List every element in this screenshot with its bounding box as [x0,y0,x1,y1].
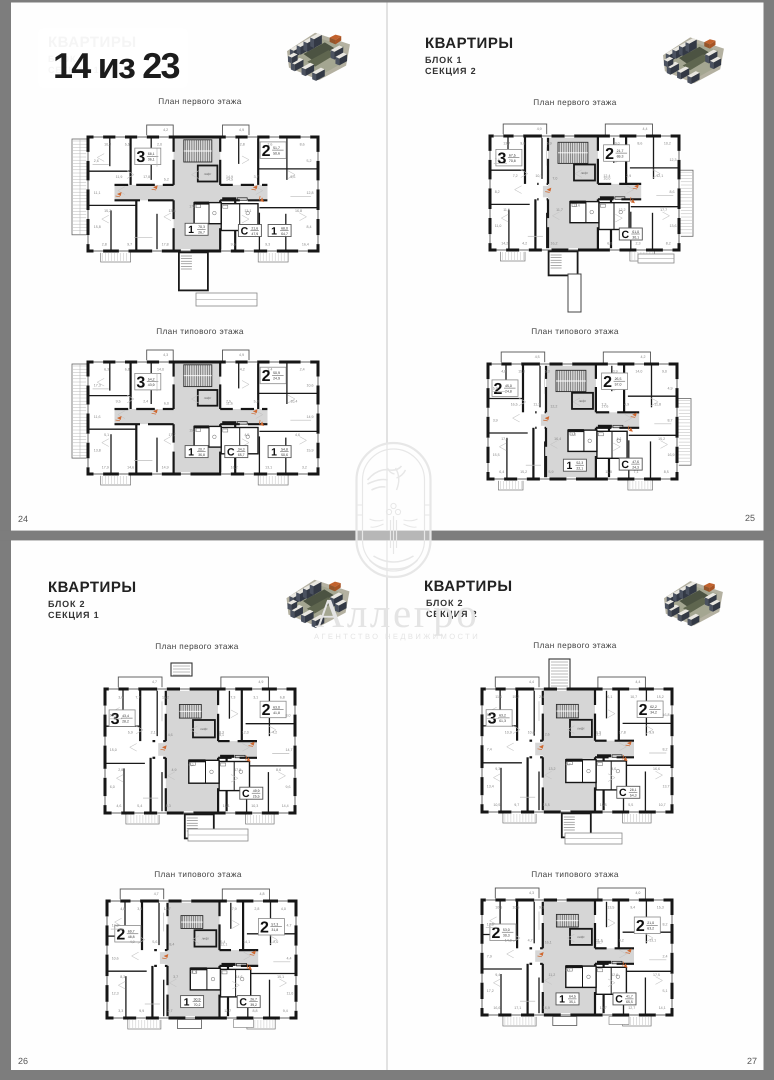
svg-text:План типового этажа: План типового этажа [156,327,244,336]
svg-text:С: С [615,994,623,1006]
svg-text:5,1: 5,1 [104,433,109,437]
svg-text:3,6: 3,6 [118,695,123,699]
svg-text:12,0: 12,0 [110,713,117,717]
svg-text:15,0: 15,0 [110,748,117,752]
svg-text:2: 2 [636,918,645,935]
svg-text:11,6: 11,6 [226,402,233,406]
svg-text:12,7: 12,7 [224,1009,231,1013]
svg-text:16,1: 16,1 [545,941,552,945]
svg-text:17,7: 17,7 [660,208,667,212]
svg-text:5,9: 5,9 [547,142,552,146]
svg-text:4,0: 4,0 [635,891,640,895]
svg-text:10,5: 10,5 [512,906,519,910]
svg-text:5,4: 5,4 [137,804,142,808]
svg-text:7,3: 7,3 [230,695,235,699]
svg-text:10,3: 10,3 [251,804,258,808]
svg-text:16,9: 16,9 [543,1006,550,1010]
svg-text:12,2: 12,2 [619,208,626,212]
svg-text:14,0: 14,0 [157,367,164,371]
svg-text:4,4: 4,4 [635,680,640,684]
svg-text:26,5: 26,5 [615,377,622,381]
svg-text:16,9: 16,9 [668,453,675,457]
svg-text:70,8: 70,8 [509,159,516,163]
svg-text:63,2: 63,2 [647,927,654,931]
svg-text:27: 27 [747,1056,757,1066]
svg-text:лифт: лифт [581,171,589,175]
svg-text:64,5: 64,5 [569,995,576,999]
svg-text:9,5: 9,5 [116,399,121,403]
svg-text:6,3: 6,3 [104,367,109,371]
svg-text:21,0: 21,0 [647,921,654,925]
svg-text:2,8: 2,8 [118,768,123,772]
svg-text:13,2: 13,2 [549,767,556,771]
svg-text:13,4: 13,4 [487,784,494,788]
svg-text:24,8: 24,8 [505,389,512,393]
svg-text:1: 1 [188,224,194,236]
svg-text:БЛОК 2: БЛОК 2 [48,599,85,609]
svg-text:11,9: 11,9 [116,175,123,179]
svg-text:4,5: 4,5 [535,355,540,359]
svg-text:5,5: 5,5 [125,143,130,147]
svg-text:2,3: 2,3 [636,241,641,245]
svg-text:План первого этажа: План первого этажа [533,641,616,650]
svg-text:4,2: 4,2 [522,241,527,245]
svg-text:10,4: 10,4 [290,399,297,403]
svg-text:КВАРТИРЫ: КВАРТИРЫ [425,35,514,52]
svg-text:4,9: 4,9 [239,353,244,357]
svg-text:11,5: 11,5 [190,971,197,975]
svg-text:10,0: 10,0 [603,176,610,180]
svg-text:47,9: 47,9 [251,232,258,236]
svg-text:3,2: 3,2 [302,465,307,469]
svg-text:17,8: 17,8 [143,175,150,179]
svg-text:6,0: 6,0 [110,785,115,789]
svg-text:лифт: лифт [202,937,210,941]
svg-text:70,2: 70,2 [194,1003,201,1007]
svg-text:65,7: 65,7 [238,453,245,457]
svg-text:5,3: 5,3 [254,399,259,403]
svg-text:С: С [241,225,249,237]
svg-text:15,5: 15,5 [600,803,607,807]
svg-text:4,2: 4,2 [163,128,168,132]
svg-text:4,6: 4,6 [611,767,616,771]
svg-text:10,9: 10,9 [505,730,512,734]
svg-text:3,3: 3,3 [596,733,601,737]
svg-text:4,8: 4,8 [260,892,265,896]
svg-text:14,9: 14,9 [307,415,314,419]
svg-text:3,1: 3,1 [571,432,576,436]
svg-text:65,5: 65,5 [626,1000,633,1004]
svg-text:54,3: 54,3 [630,794,637,798]
svg-text:4,4: 4,4 [643,127,648,131]
svg-text:4,2: 4,2 [272,731,277,735]
svg-text:3,3: 3,3 [118,1009,123,1013]
svg-text:69,3: 69,3 [617,154,624,158]
svg-text:10,5: 10,5 [493,803,500,807]
svg-text:15,8: 15,8 [94,225,101,229]
svg-text:16,6: 16,6 [493,1006,500,1010]
svg-text:64,7: 64,7 [281,232,288,236]
svg-text:4,9: 4,9 [239,128,244,132]
svg-text:11,1: 11,1 [94,191,101,195]
svg-text:5,1: 5,1 [663,989,668,993]
svg-text:2,0: 2,0 [273,940,278,944]
svg-text:лифт: лифт [204,172,212,176]
svg-text:2,9: 2,9 [626,174,631,178]
svg-text:1: 1 [559,994,565,1006]
svg-text:9,6: 9,6 [286,785,291,789]
svg-text:50,6: 50,6 [273,151,280,155]
svg-text:13,1: 13,1 [649,938,656,942]
svg-text:7,4: 7,4 [487,748,492,752]
svg-text:лифт: лифт [577,727,585,731]
svg-text:5,5: 5,5 [628,803,633,807]
svg-text:5,8: 5,8 [493,386,498,390]
svg-text:8,6: 8,6 [637,142,642,146]
svg-text:16,8: 16,8 [663,713,670,717]
svg-text:24: 24 [18,514,28,524]
svg-text:3,4: 3,4 [267,367,272,371]
svg-text:15,5: 15,5 [543,803,550,807]
svg-text:лифт: лифт [204,396,212,400]
svg-text:21,7: 21,7 [617,149,624,153]
svg-text:4,7: 4,7 [154,892,159,896]
svg-text:9,6: 9,6 [290,175,295,179]
svg-text:13,6: 13,6 [670,224,677,228]
svg-text:5,9: 5,9 [549,470,554,474]
svg-text:2: 2 [603,374,612,391]
svg-text:15,0: 15,0 [518,370,525,374]
svg-text:47,6: 47,6 [632,460,639,464]
svg-text:6,2: 6,2 [189,763,194,767]
svg-text:2: 2 [639,702,648,719]
svg-text:52,3: 52,3 [576,461,583,465]
svg-text:12,1: 12,1 [656,174,663,178]
svg-text:9,4: 9,4 [283,1009,288,1013]
svg-text:8,7: 8,7 [668,419,673,423]
svg-text:31,8: 31,8 [271,928,278,932]
svg-text:4,9: 4,9 [537,127,542,131]
svg-text:15,1: 15,1 [277,975,284,979]
svg-text:СЕКЦИЯ 2: СЕКЦИЯ 2 [425,66,476,76]
svg-text:6,0: 6,0 [607,241,612,245]
svg-text:9,3: 9,3 [539,906,544,910]
svg-text:План первого этажа: План первого этажа [158,97,241,106]
svg-text:50,6: 50,6 [281,453,288,457]
svg-text:11,6: 11,6 [94,415,101,419]
svg-text:3,9: 3,9 [493,419,498,423]
svg-text:10,6: 10,6 [528,730,535,734]
svg-text:51,7: 51,7 [273,146,280,150]
svg-text:11,0: 11,0 [287,992,294,996]
svg-text:24,9: 24,9 [273,377,280,381]
svg-text:лифт: лифт [200,727,208,731]
svg-text:2,8: 2,8 [102,242,107,246]
svg-text:10,1: 10,1 [535,174,542,178]
svg-text:10,6: 10,6 [307,384,314,388]
svg-text:С: С [227,446,235,458]
svg-text:10,6: 10,6 [112,957,119,961]
svg-text:17,8: 17,8 [619,730,626,734]
svg-text:50,9: 50,9 [194,997,201,1001]
svg-text:14,9: 14,9 [162,465,169,469]
svg-text:48,8: 48,8 [128,935,135,939]
svg-text:13,7: 13,7 [600,1006,607,1010]
svg-text:7,7: 7,7 [135,695,140,699]
svg-text:10,7: 10,7 [659,803,666,807]
svg-text:16,6: 16,6 [653,767,660,771]
svg-text:8,4: 8,4 [169,943,174,947]
svg-text:6,4: 6,4 [499,470,504,474]
svg-text:2,1: 2,1 [151,731,156,735]
svg-text:15,2: 15,2 [104,209,111,213]
svg-text:1: 1 [566,460,572,472]
svg-text:3,9: 3,9 [613,370,618,374]
svg-text:67,5: 67,5 [509,154,516,158]
svg-text:лифт: лифт [577,935,585,939]
svg-text:5,3: 5,3 [545,370,550,374]
svg-text:7,4: 7,4 [495,158,500,162]
svg-text:11,8: 11,8 [654,402,661,406]
svg-text:4,7: 4,7 [152,680,157,684]
svg-text:2,4: 2,4 [143,399,148,403]
svg-text:11,7: 11,7 [556,208,563,212]
svg-text:3,7: 3,7 [173,975,178,979]
svg-text:6,8: 6,8 [280,695,285,699]
svg-text:53,0: 53,0 [503,928,510,932]
svg-text:10,2: 10,2 [664,142,671,146]
svg-text:СЕКЦИЯ 1: СЕКЦИЯ 1 [48,610,99,620]
svg-text:17,8: 17,8 [234,768,241,772]
svg-text:15,2: 15,2 [512,695,519,699]
svg-text:35,1: 35,1 [569,1000,576,1004]
svg-text:13,8: 13,8 [169,209,176,213]
svg-text:С: С [619,787,627,799]
svg-text:9,7: 9,7 [127,242,132,246]
svg-text:1: 1 [271,225,277,237]
svg-text:8,6: 8,6 [300,143,305,147]
svg-text:10,6: 10,6 [495,906,502,910]
svg-text:План типового этажа: План типового этажа [154,870,242,879]
svg-text:4,6: 4,6 [168,733,173,737]
svg-text:25,5: 25,5 [253,795,260,799]
svg-text:28,2: 28,2 [122,719,129,723]
svg-text:9,2: 9,2 [619,938,624,942]
svg-text:3,7: 3,7 [254,175,259,179]
svg-text:12,3: 12,3 [670,158,677,162]
svg-text:13,7: 13,7 [503,142,510,146]
svg-text:11,0: 11,0 [495,224,502,228]
svg-text:9,3: 9,3 [265,242,270,246]
svg-text:5,2: 5,2 [164,177,169,181]
svg-text:4,3: 4,3 [529,891,534,895]
svg-text:17,1: 17,1 [514,1006,521,1010]
svg-text:36,1: 36,1 [148,158,155,162]
svg-text:11,2: 11,2 [549,973,556,977]
svg-text:34,2: 34,2 [650,711,657,715]
svg-text:21,6: 21,6 [251,226,258,230]
svg-text:16,2: 16,2 [231,465,238,469]
svg-text:61,0: 61,0 [632,230,639,234]
svg-text:26: 26 [18,1056,28,1066]
svg-text:2,4: 2,4 [539,695,544,699]
svg-text:30,3: 30,3 [503,934,510,938]
svg-text:8,6: 8,6 [670,190,675,194]
svg-text:12,8: 12,8 [307,191,314,195]
svg-text:14,6: 14,6 [236,975,243,979]
svg-text:16,5: 16,5 [511,402,518,406]
svg-text:17,6: 17,6 [601,405,608,409]
svg-text:4,4: 4,4 [287,957,292,961]
svg-text:9,0: 9,0 [615,142,620,146]
svg-text:50,9: 50,9 [273,371,280,375]
svg-text:4,7: 4,7 [528,938,533,942]
svg-text:30,1: 30,1 [632,235,639,239]
svg-text:61,3: 61,3 [499,719,506,723]
svg-text:57,3: 57,3 [271,923,278,927]
svg-text:4,4: 4,4 [529,680,534,684]
svg-text:11,5: 11,5 [503,208,510,212]
svg-text:68,1: 68,1 [148,152,155,156]
svg-text:4,6: 4,6 [116,804,121,808]
svg-text:6,8: 6,8 [125,367,130,371]
svg-text:17,5: 17,5 [501,437,508,441]
svg-text:2,7: 2,7 [168,1009,173,1013]
svg-text:13,1: 13,1 [244,209,251,213]
svg-text:15,5: 15,5 [493,453,500,457]
svg-text:План первого этажа: План первого этажа [533,98,616,107]
svg-text:25: 25 [745,513,755,523]
svg-text:17,0: 17,0 [189,205,196,209]
svg-text:12,3: 12,3 [112,992,119,996]
svg-text:4,2: 4,2 [240,367,245,371]
svg-text:16,8: 16,8 [295,209,302,213]
svg-text:10,3: 10,3 [104,143,111,147]
svg-text:15,2: 15,2 [162,695,169,699]
svg-text:лифт: лифт [579,399,587,403]
svg-text:7,0: 7,0 [552,176,557,180]
svg-text:5,6: 5,6 [152,940,157,944]
svg-text:69,7: 69,7 [128,930,135,934]
svg-text:62,2: 62,2 [650,705,657,709]
svg-text:8,0: 8,0 [286,713,291,717]
svg-text:4,9: 4,9 [130,940,135,944]
svg-text:63,0: 63,0 [273,705,280,709]
svg-text:17,7: 17,7 [169,433,176,437]
svg-text:4,8: 4,8 [501,370,506,374]
svg-text:16,2: 16,2 [551,241,558,245]
svg-text:6,1: 6,1 [607,695,612,699]
svg-text:17,0: 17,0 [487,922,494,926]
svg-text:17,0: 17,0 [112,924,119,928]
svg-text:2: 2 [262,702,271,719]
svg-text:9,4: 9,4 [495,973,500,977]
svg-text:12,6: 12,6 [611,973,618,977]
svg-text:15,2: 15,2 [657,695,664,699]
svg-text:14,7: 14,7 [164,907,171,911]
svg-text:34,3: 34,3 [238,447,245,451]
svg-text:4,9: 4,9 [624,402,629,406]
svg-text:Аллегро: Аллегро [315,590,480,636]
svg-text:41,7: 41,7 [626,995,633,999]
svg-text:4,6: 4,6 [295,433,300,437]
svg-text:8,2: 8,2 [666,241,671,245]
svg-text:12,0: 12,0 [242,731,249,735]
svg-text:План типового этажа: План типового этажа [531,327,619,336]
svg-text:3: 3 [136,374,145,391]
svg-text:7,9: 7,9 [487,955,492,959]
svg-text:2,0: 2,0 [157,143,162,147]
svg-text:11,0: 11,0 [495,695,502,699]
svg-text:8,2: 8,2 [663,922,668,926]
svg-text:17,3: 17,3 [94,384,101,388]
svg-text:8,2: 8,2 [495,190,500,194]
svg-text:26,7: 26,7 [198,231,205,235]
svg-text:14,4: 14,4 [282,804,289,808]
svg-text:1: 1 [271,446,277,458]
svg-text:15,3: 15,3 [657,906,664,910]
svg-text:10,7: 10,7 [630,695,637,699]
svg-text:БЛОК 1: БЛОК 1 [425,55,462,65]
svg-text:4,9: 4,9 [172,768,177,772]
svg-text:3,9: 3,9 [137,907,142,911]
svg-text:17,9: 17,9 [102,465,109,469]
svg-text:8,8: 8,8 [253,1009,258,1013]
svg-text:АГЕНТСТВО НЕДВИЖИМОСТИ: АГЕНТСТВО НЕДВИЖИМОСТИ [314,632,480,641]
svg-text:8,6: 8,6 [276,768,281,772]
svg-text:1: 1 [188,446,194,458]
svg-text:14,7: 14,7 [286,748,293,752]
svg-text:16,4: 16,4 [554,437,561,441]
svg-text:9,7: 9,7 [514,803,519,807]
svg-text:43,4: 43,4 [122,714,129,718]
svg-text:2,8: 2,8 [240,143,245,147]
svg-text:9,0: 9,0 [662,370,667,374]
svg-text:45,0: 45,0 [505,384,512,388]
svg-text:20,7: 20,7 [198,447,205,451]
svg-text:15,1: 15,1 [189,428,196,432]
svg-text:4,7: 4,7 [287,924,292,928]
svg-text:7,1: 7,1 [634,470,639,474]
svg-text:С: С [242,788,250,800]
svg-text:4,5: 4,5 [244,433,249,437]
svg-text:14,0: 14,0 [505,938,512,942]
svg-text:4,9: 4,9 [258,680,263,684]
svg-text:План типового этажа: План типового этажа [531,870,619,879]
svg-text:36,8: 36,8 [198,453,205,457]
svg-text:9,9: 9,9 [139,1009,144,1013]
svg-text:12,1: 12,1 [220,943,227,947]
svg-text:12,2: 12,2 [550,405,557,409]
svg-text:КВАРТИРЫ: КВАРТИРЫ [48,579,137,596]
svg-text:15,2: 15,2 [658,437,665,441]
svg-text:2,4: 2,4 [300,367,305,371]
svg-text:2,6: 2,6 [94,159,99,163]
svg-text:16,4: 16,4 [302,242,309,246]
svg-text:13,6: 13,6 [573,204,580,208]
svg-text:43,9: 43,9 [148,383,155,387]
svg-text:14 из 23: 14 из 23 [53,45,179,86]
svg-text:2,6: 2,6 [545,733,550,737]
svg-text:8,3: 8,3 [120,975,125,979]
svg-text:2,4: 2,4 [663,955,668,959]
svg-text:2: 2 [605,146,614,163]
svg-text:С: С [621,459,629,471]
svg-text:15,1: 15,1 [223,804,230,808]
svg-text:6,0: 6,0 [164,402,169,406]
svg-text:4,2: 4,2 [641,355,646,359]
svg-text:8,4: 8,4 [307,225,312,229]
